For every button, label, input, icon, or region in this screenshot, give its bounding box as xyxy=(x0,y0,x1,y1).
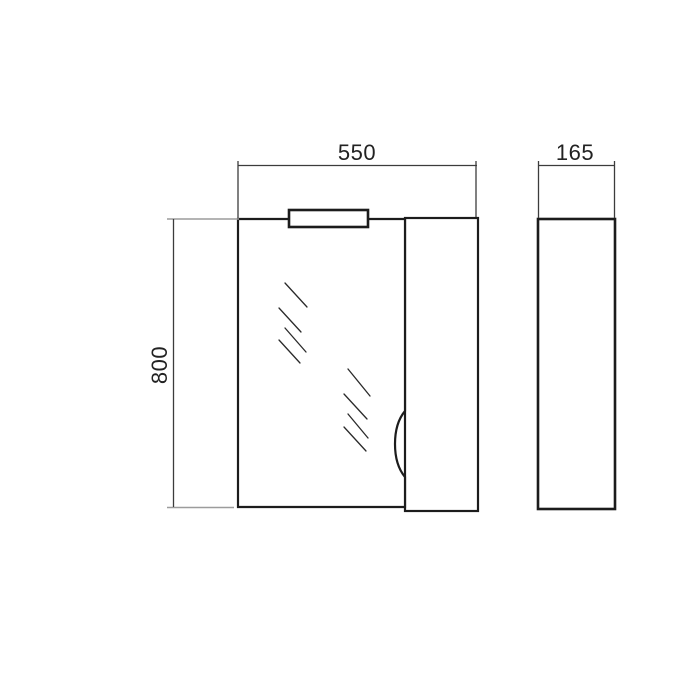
front-view xyxy=(238,210,478,511)
light-fixture xyxy=(289,210,368,227)
depth-dimension-label: 165 xyxy=(556,140,594,165)
width-dimension-label: 550 xyxy=(338,140,376,165)
depth-dimension: 165 xyxy=(538,140,615,218)
technical-drawing-canvas: 550 165 800 xyxy=(0,0,700,700)
height-extension-lines xyxy=(167,219,239,508)
width-dimension: 550 xyxy=(238,140,477,218)
drawing-svg: 550 165 800 xyxy=(0,0,700,700)
side-cupboard-outline xyxy=(405,218,478,511)
height-dimension: 800 xyxy=(147,219,239,508)
side-view xyxy=(538,219,615,509)
side-view-outline xyxy=(538,219,615,509)
depth-dimension-lines xyxy=(538,161,615,218)
mirror-door-outline xyxy=(238,219,405,507)
height-dimension-label: 800 xyxy=(147,346,172,384)
